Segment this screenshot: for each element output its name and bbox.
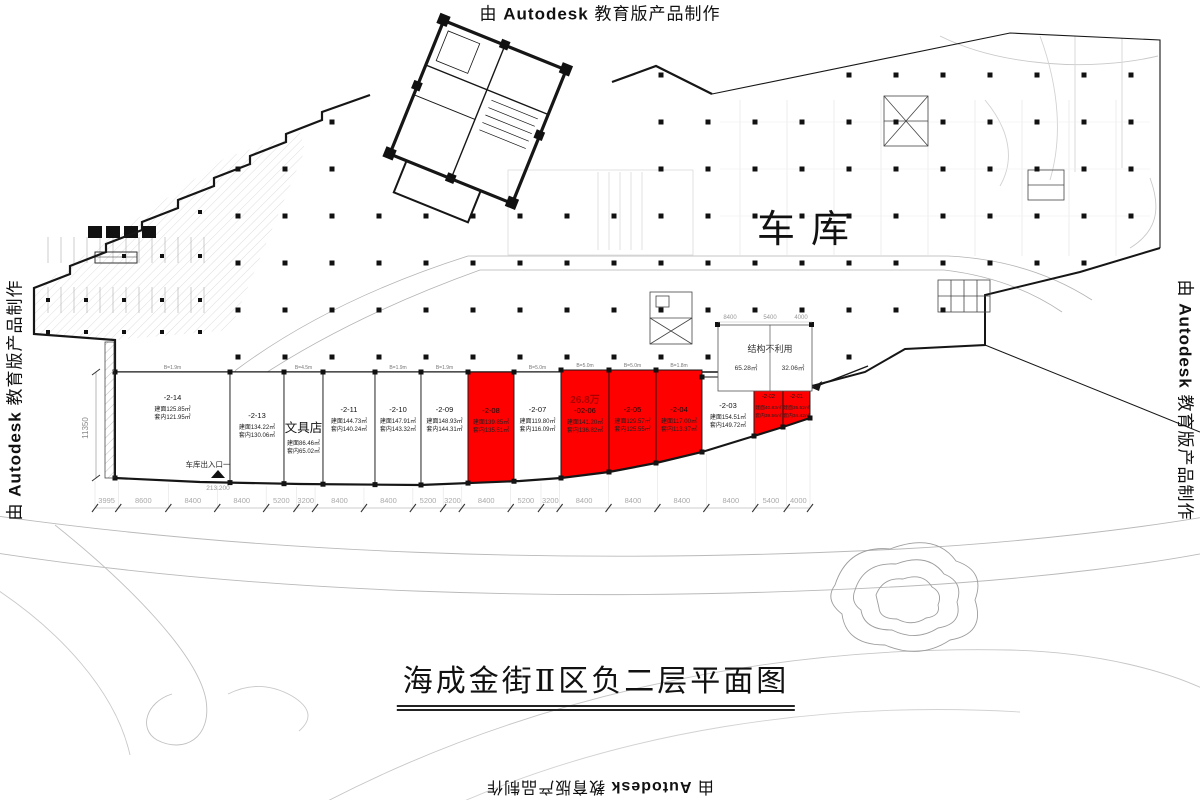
column-marker [330, 214, 335, 219]
unit-inner-area-label: 套内136.82㎡ [567, 426, 603, 434]
unit-inner-area-label: 套内116.09㎡ [520, 425, 556, 433]
column-marker [894, 308, 899, 313]
unit-area-label: 建面147.91㎡ [380, 417, 416, 425]
column-marker [988, 73, 993, 78]
strip-column [466, 370, 471, 375]
column-marker [518, 355, 523, 360]
column-marker [283, 308, 288, 313]
unit-area-label: 建面119.80㎡ [520, 417, 556, 425]
unit-inner-area-label: 套内130.06㎡ [239, 431, 275, 439]
unit-id-label: -2-05 [624, 405, 642, 414]
column-marker [753, 167, 758, 172]
machine-room-block [372, 13, 574, 237]
unit-id-label: -2-01 [790, 394, 803, 400]
strip-column [700, 375, 705, 380]
stair-core-right-top [884, 96, 928, 146]
column-marker [565, 308, 570, 313]
column-marker [424, 355, 429, 360]
column-marker [706, 355, 711, 360]
column-marker [706, 261, 711, 266]
column-marker [471, 261, 476, 266]
unit-area-label: 建面35.52㎡ [783, 404, 810, 411]
dimension-label: 5200 [273, 496, 290, 505]
unit-width-note: B=5.0m [576, 363, 593, 369]
unit-inner-area-label: 套内121.95㎡ [154, 413, 190, 421]
column-marker [160, 298, 164, 302]
unit-area-label: 建面141.20㎡ [567, 418, 603, 426]
column-marker [1129, 120, 1134, 125]
dimension-label: 4000 [790, 496, 807, 505]
watermark-top: 由 Autodesk 教育版产品制作 [480, 0, 721, 25]
column-marker [471, 214, 476, 219]
column-marker [84, 298, 88, 302]
column-marker [565, 214, 570, 219]
dimension-label: 8400 [380, 496, 397, 505]
unit-id-label: -2-11 [341, 405, 358, 414]
column-marker [330, 167, 335, 172]
dimension-label: 8400 [674, 496, 691, 505]
column-marker [471, 355, 476, 360]
unit-id-label: -2-14 [164, 393, 182, 402]
dimension-label: 8400 [576, 496, 593, 505]
strip-column [654, 368, 659, 373]
unit-id-label: -02-06 [574, 406, 596, 415]
unit-inner-area-label: 套内39.56㎡ [755, 412, 782, 419]
dimension-label: 8400 [478, 496, 495, 505]
column-marker [800, 261, 805, 266]
column-marker [847, 355, 852, 360]
unit-inner-area-label: 套内65.02㎡ [287, 447, 320, 455]
strip-column [228, 370, 233, 375]
unit-id-label: -2-04 [670, 405, 688, 414]
ramp-stripes [508, 170, 693, 255]
column-marker [160, 330, 164, 334]
column-marker [894, 167, 899, 172]
strip-column [373, 370, 378, 375]
column-marker [847, 167, 852, 172]
parking-zone [34, 132, 305, 340]
unit-inner-area-label: 套内140.24㎡ [331, 425, 367, 433]
dimension-label: 8400 [184, 496, 201, 505]
unit-width-note: B=5.0m [529, 365, 546, 371]
column-marker [46, 330, 50, 334]
column-marker [1082, 167, 1087, 172]
dimension-label: 5200 [518, 496, 535, 505]
column-marker [122, 298, 126, 302]
watermark-right: 由 Autodesk 教育版产品制作 [1175, 280, 1200, 521]
column-marker [565, 261, 570, 266]
column-marker [1129, 214, 1134, 219]
column-marker [753, 261, 758, 266]
column-marker [377, 308, 382, 313]
column-marker [659, 120, 664, 125]
column-marker [1129, 73, 1134, 78]
unused-structure-label: 结构不利用 [747, 343, 792, 354]
electric-room [938, 280, 990, 312]
column-marker [424, 214, 429, 219]
shrub-mounds [831, 543, 978, 652]
strip-column [321, 370, 326, 375]
column-marker [847, 261, 852, 266]
unit-id-label: -2-08 [482, 406, 500, 415]
column-marker [1129, 167, 1134, 172]
column-marker [612, 308, 617, 313]
column-marker [659, 214, 664, 219]
column-marker [988, 167, 993, 172]
column-marker [894, 120, 899, 125]
column-marker [424, 261, 429, 266]
column-marker [330, 261, 335, 266]
column-marker [198, 298, 202, 302]
unit-area-label: 建面134.22㎡ [239, 423, 275, 431]
column-marker [941, 261, 946, 266]
unit-width-note: B=4.5m [295, 365, 312, 371]
column-marker [659, 73, 664, 78]
column-marker [800, 308, 805, 313]
column-marker [941, 73, 946, 78]
unused-structure-area1: 65.28㎡ [735, 363, 758, 372]
unit-width-note: B=1.9m [164, 365, 181, 371]
column-marker [1035, 120, 1040, 125]
watermark-pre: 由 [480, 5, 498, 24]
column-marker [160, 254, 164, 258]
column-marker [894, 73, 899, 78]
unit-area-label: 建面117.00㎡ [661, 417, 697, 425]
column-marker [706, 167, 711, 172]
column-marker [198, 330, 202, 334]
unit-area-label: 建面144.73㎡ [331, 417, 367, 425]
unit-area-label: 建面148.93㎡ [426, 417, 462, 425]
unit-area-label: 建面40.83㎡ [755, 404, 782, 411]
column-marker [122, 254, 126, 258]
column-marker [1082, 73, 1087, 78]
unit-area-label: 建面86.46㎡ [287, 439, 320, 447]
column-marker [518, 261, 523, 266]
unit-id-label: -2-09 [436, 405, 454, 414]
left-dimension: 11350 [81, 369, 100, 481]
column-marker [1035, 73, 1040, 78]
unused-structure-area2: 32.06㎡ [782, 363, 805, 372]
column-marker [565, 355, 570, 360]
column-marker [1082, 261, 1087, 266]
watermark-post: 教育版产品制作 [594, 5, 720, 24]
upper-dim-2: 5400 [763, 315, 777, 321]
column-marker [518, 308, 523, 313]
garage-label: 车库 [757, 209, 865, 251]
column-marker [518, 214, 523, 219]
column-marker [988, 214, 993, 219]
unit-width-note: B=5.0m [624, 363, 641, 369]
column-marker [659, 167, 664, 172]
column-marker [659, 308, 664, 313]
unit-inner-area-label: 套内144.31㎡ [426, 425, 462, 433]
column-marker [236, 308, 241, 313]
column-marker [1082, 214, 1087, 219]
unit-id-label: -2-02 [762, 394, 775, 400]
dimension-label: 5200 [420, 496, 437, 505]
column-marker [706, 214, 711, 219]
column-marker [198, 210, 202, 214]
strip-column [512, 370, 517, 375]
room-right [1028, 170, 1064, 200]
column-marker [330, 120, 335, 125]
unit-width-note: B=1.8m [670, 363, 687, 369]
column-marker [283, 355, 288, 360]
column-marker [122, 330, 126, 334]
strip-column [282, 370, 287, 375]
unit-id-label: -2-13 [248, 411, 266, 420]
column-marker [1035, 261, 1040, 266]
upper-dim-3: 4000 [794, 315, 808, 321]
strip-column [607, 368, 612, 373]
column-marker [377, 355, 382, 360]
dimension-label: 3200 [444, 496, 461, 505]
column-marker [941, 308, 946, 313]
column-marker [84, 330, 88, 334]
unit-inner-area-label: 套内143.32㎡ [380, 425, 416, 433]
dimension-label: 8400 [233, 496, 250, 505]
ramp-outline [508, 170, 693, 255]
entrance-label: 车库出入口一 [186, 459, 231, 469]
column-marker [847, 308, 852, 313]
column-marker [330, 355, 335, 360]
column-marker [753, 308, 758, 313]
column-marker [236, 355, 241, 360]
dimension-label: 5400 [763, 496, 780, 505]
column-marker [283, 167, 288, 172]
column-marker [847, 120, 852, 125]
column-marker [941, 167, 946, 172]
upper-dim-1: 8400 [723, 315, 737, 321]
column-marker [894, 214, 899, 219]
column-marker [330, 308, 335, 313]
left-dim-label: 11350 [81, 417, 90, 439]
dimension-label: 8400 [331, 496, 348, 505]
column-marker [236, 214, 241, 219]
unused-structure-box: 结构不利用 65.28㎡ 32.06㎡ 8400 5400 4000 [715, 315, 814, 391]
column-marker [659, 355, 664, 360]
column-marker [377, 261, 382, 266]
unit-width-note: B=1.9m [436, 365, 453, 371]
column-marker [800, 120, 805, 125]
column-marker [612, 355, 617, 360]
unit-id-label: -2-07 [529, 405, 547, 414]
column-marker [800, 167, 805, 172]
unit-inner-area-label: 套内125.55㎡ [614, 425, 650, 433]
column-marker [753, 120, 758, 125]
column-marker [612, 214, 617, 219]
column-marker [283, 261, 288, 266]
column-marker [706, 308, 711, 313]
column-marker [659, 261, 664, 266]
dimension-label: 8400 [722, 496, 739, 505]
column-marker [283, 214, 288, 219]
column-marker [236, 261, 241, 266]
watermark-brand: Autodesk [503, 5, 588, 24]
drawing-title: 海成金街Ⅱ区负二层平面图 [397, 656, 795, 707]
column-marker [988, 261, 993, 266]
unit-id-label: 文具店 [285, 420, 323, 435]
column-marker [424, 308, 429, 313]
entrance-elevation: 213.200 [206, 485, 230, 492]
center-core [650, 292, 692, 344]
column-marker [1082, 120, 1087, 125]
unit-inner-area-label: 套内34.42㎡ [783, 412, 810, 419]
column-marker [941, 214, 946, 219]
unit-inner-area-label: 套内149.72㎡ [710, 421, 746, 429]
strip-column [559, 368, 564, 373]
unit-room [656, 370, 702, 463]
column-marker [894, 261, 899, 266]
unit-inner-area-label: 套内135.51㎡ [473, 426, 509, 434]
unit-id-label: -2-03 [719, 401, 737, 410]
unit-width-note: B=1.9m [389, 365, 406, 371]
watermark-left: 由 Autodesk 教育版产品制作 [1, 280, 26, 521]
column-marker [1035, 167, 1040, 172]
unit-price-note: 26.8万 [570, 394, 599, 406]
column-marker [941, 120, 946, 125]
column-marker [471, 308, 476, 313]
unit-inner-area-label: 套内113.37㎡ [661, 425, 697, 433]
column-marker [847, 73, 852, 78]
column-marker [612, 261, 617, 266]
dimension-label: 3200 [542, 496, 559, 505]
unit-area-label: 建面139.85㎡ [473, 418, 509, 426]
column-marker [46, 298, 50, 302]
unit-id-label: -2-10 [389, 405, 407, 414]
column-marker [236, 167, 241, 172]
column-marker [988, 120, 993, 125]
dimension-label: 3200 [297, 496, 314, 505]
column-marker [706, 120, 711, 125]
unit-area-label: 建面129.57㎡ [614, 417, 650, 425]
dimension-label: 8600 [135, 496, 152, 505]
unit-area-label: 建面125.85㎡ [154, 405, 190, 413]
column-marker [198, 254, 202, 258]
unit-area-label: 建面154.51㎡ [710, 413, 746, 421]
dimension-label: 3995 [98, 496, 115, 505]
column-marker [1035, 214, 1040, 219]
cad-screenshot: B=1.9m-2-14建面125.85㎡套内121.95㎡-2-13建面134.… [0, 0, 1200, 800]
column-marker [377, 214, 382, 219]
dimension-label: 8400 [625, 496, 642, 505]
strip-column [419, 370, 424, 375]
watermark-bottom: 由 Autodesk 教育版产品制作 [486, 777, 714, 800]
